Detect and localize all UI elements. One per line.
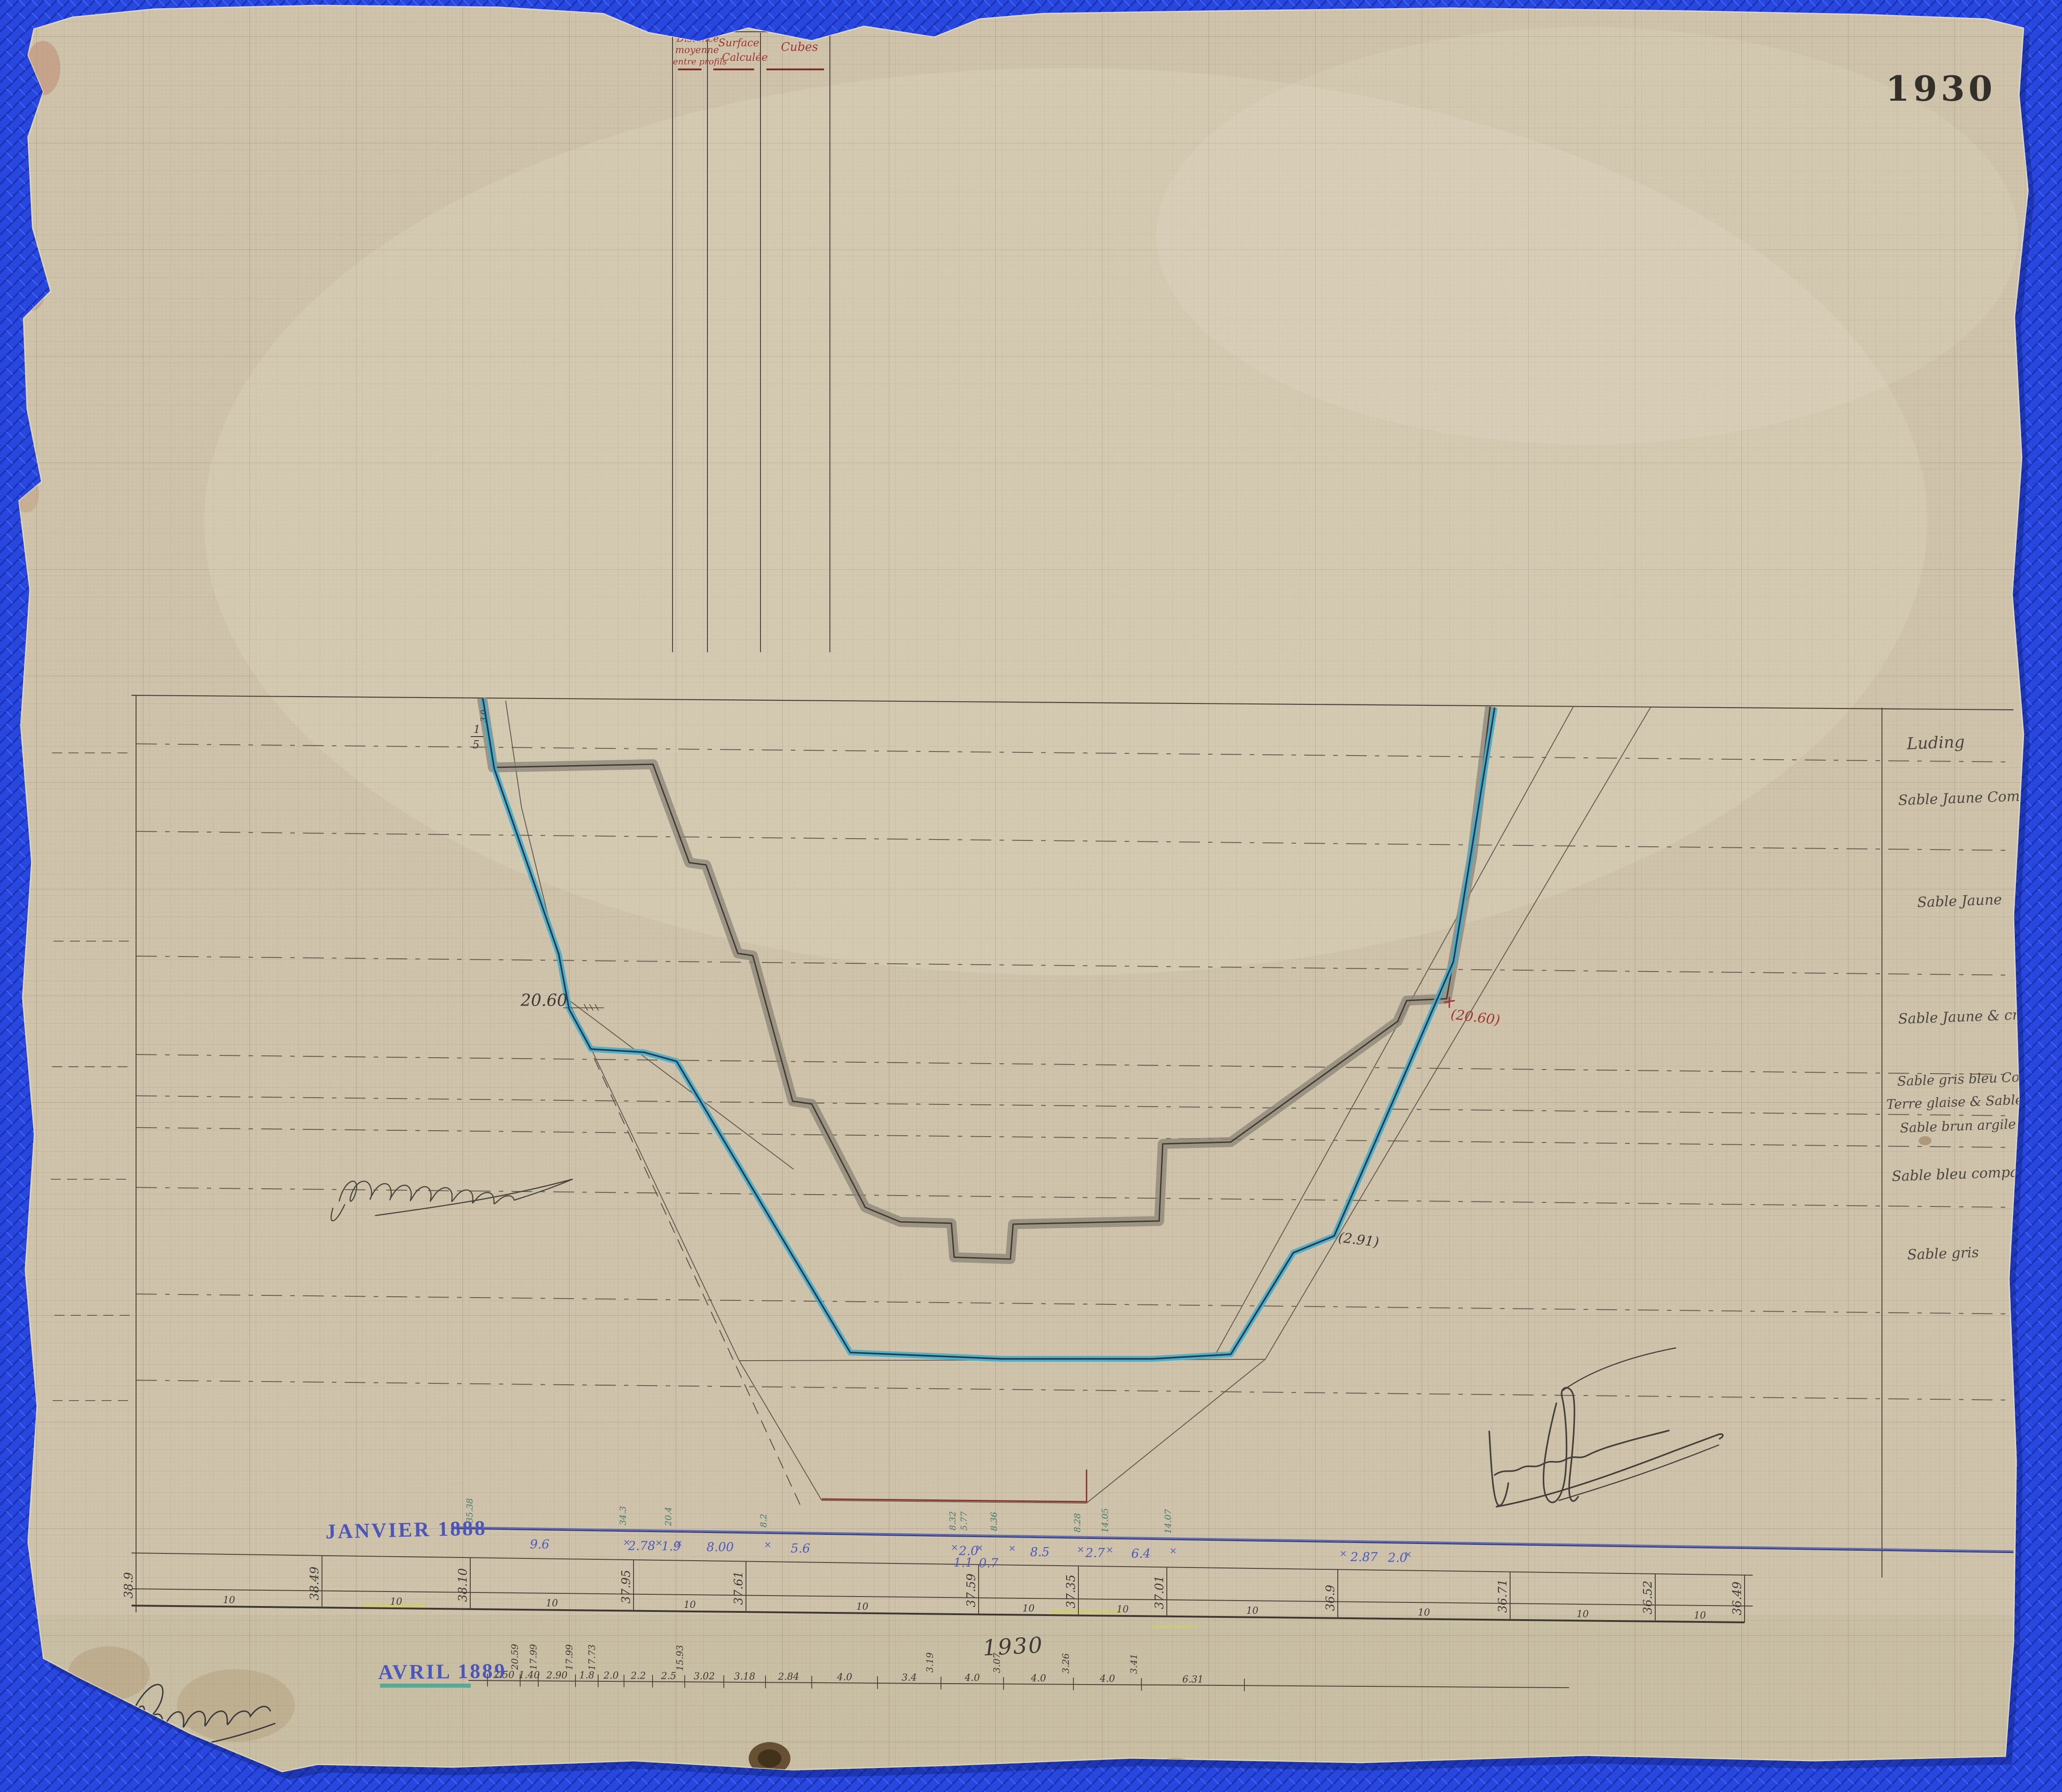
janvier-x-mark: × bbox=[1170, 1545, 1177, 1556]
janvier-x-mark: × bbox=[623, 1537, 631, 1548]
station-spacing-label: 10 bbox=[1694, 1610, 1706, 1621]
janvier-depth-value: 5.6 bbox=[791, 1542, 810, 1556]
station-elevation: 36.52 bbox=[1641, 1581, 1655, 1614]
table-col2-line2: Calculée bbox=[722, 52, 768, 63]
station-elevation: 37.95 bbox=[619, 1570, 633, 1603]
station-elevation: 37.61 bbox=[732, 1571, 746, 1605]
bench-elevation-label: 20.60 bbox=[520, 991, 567, 1010]
slope-ratio-denominator: 5 bbox=[473, 738, 479, 751]
station-spacing-label: 10 bbox=[390, 1596, 402, 1607]
table-col1-line3: entre profils bbox=[673, 57, 727, 67]
table-col1-line2: moyenne bbox=[675, 44, 719, 55]
avril-elevation-value: 3.26 bbox=[1060, 1653, 1071, 1674]
janvier-x-mark: × bbox=[951, 1542, 959, 1553]
janvier-depth-value: 8.00 bbox=[707, 1540, 734, 1554]
soil-label-0: Luding bbox=[1906, 733, 1965, 753]
avril-width-value: 2.0 bbox=[603, 1670, 619, 1681]
station-elevation: 38.10 bbox=[456, 1568, 470, 1602]
janvier-x-mark: × bbox=[655, 1537, 663, 1548]
station-elevation: 38.9 bbox=[122, 1572, 136, 1598]
station-spacing-label: 10 bbox=[1577, 1609, 1589, 1620]
avril-width-value: 2.90 bbox=[546, 1670, 568, 1680]
janvier-depth-value: 8.5 bbox=[1030, 1545, 1050, 1559]
plate-number-top-right: 1930 bbox=[1886, 68, 1996, 109]
avril-elevation-value: 15.93 bbox=[674, 1645, 685, 1671]
station-spacing-label: 10 bbox=[1023, 1603, 1035, 1614]
janvier-depth-value: 2.87 bbox=[1350, 1550, 1378, 1564]
yellow-marker-streak bbox=[1152, 1625, 1197, 1628]
avril-elevation-value: 17.99 bbox=[528, 1644, 539, 1670]
avril-width-value: 2.84 bbox=[778, 1671, 799, 1682]
avril-width-value: 6.31 bbox=[1182, 1674, 1204, 1685]
janvier-height-value: 8.28 bbox=[1072, 1513, 1082, 1532]
avril-width-value: 1.8 bbox=[579, 1670, 594, 1681]
janvier-1888-stamp: JANVIER 1888 bbox=[325, 1516, 487, 1543]
avril-width-value: 2.50 bbox=[493, 1670, 515, 1680]
avril-width-value: 4.0 bbox=[1099, 1673, 1115, 1684]
station-spacing-label: 10 bbox=[1418, 1607, 1430, 1618]
avril-width-value: 3.02 bbox=[694, 1670, 715, 1681]
stain bbox=[177, 1669, 295, 1742]
station-elevation: 37.59 bbox=[965, 1573, 978, 1607]
janvier-depth-value: 1.1 bbox=[954, 1556, 973, 1570]
avril-width-value: 4.0 bbox=[837, 1671, 852, 1682]
avril-elevation-value: 20.59 bbox=[509, 1644, 520, 1670]
janvier-depth-value: 2.78 bbox=[628, 1539, 655, 1553]
station-spacing-label: 10 bbox=[546, 1598, 558, 1609]
scanned-survey-profile-sheet: Distance moyenne entre profils Surface C… bbox=[0, 0, 2062, 1792]
station-spacing-label: 10 bbox=[1246, 1605, 1258, 1616]
slope-ratio-numerator: 1 bbox=[473, 723, 480, 736]
janvier-x-mark: × bbox=[1009, 1543, 1016, 1553]
yellow-marker-streak bbox=[1050, 1609, 1122, 1613]
crest-note: 3.0 bbox=[479, 710, 488, 722]
janvier-x-mark: × bbox=[1106, 1544, 1114, 1555]
station-spacing-label: 10 bbox=[684, 1599, 696, 1610]
station-spacing-label: 10 bbox=[223, 1594, 235, 1605]
janvier-x-mark: × bbox=[675, 1538, 683, 1548]
janvier-x-mark: × bbox=[1340, 1548, 1347, 1558]
avril-width-value: 3.18 bbox=[734, 1671, 756, 1682]
avril-width-value: 4.0 bbox=[1030, 1673, 1046, 1684]
station-spacing-label: 10 bbox=[856, 1601, 868, 1612]
station-elevation: 36.49 bbox=[1731, 1582, 1744, 1615]
avril-width-value: 1.40 bbox=[519, 1670, 540, 1680]
soil-label-2: Sable Jaune bbox=[1917, 891, 2002, 910]
avril-width-value: 2.5 bbox=[661, 1670, 676, 1681]
station-elevation: 38.49 bbox=[308, 1567, 322, 1600]
janvier-x-mark: × bbox=[1404, 1549, 1412, 1560]
table-col3-label: Cubes bbox=[781, 40, 818, 54]
station-elevation: 37.35 bbox=[1064, 1574, 1078, 1608]
avril-elevation-value: 3.41 bbox=[1128, 1654, 1139, 1674]
station-elevation: 36.71 bbox=[1496, 1579, 1510, 1612]
janvier-height-value: 35.38 bbox=[465, 1498, 475, 1523]
janvier-depth-value: 2.7 bbox=[1085, 1546, 1106, 1560]
janvier-height-value: 5.77 bbox=[959, 1511, 969, 1530]
janvier-height-value: 8.36 bbox=[989, 1512, 999, 1531]
janvier-x-mark: × bbox=[1077, 1544, 1085, 1555]
janvier-height-value: 20.4 bbox=[663, 1507, 673, 1526]
station-elevation: 36.9 bbox=[1324, 1585, 1337, 1611]
janvier-depth-value: 9.6 bbox=[530, 1538, 550, 1552]
avril-elevation-value: 3.07 bbox=[991, 1653, 1002, 1673]
table-col2-line1: Surface bbox=[718, 37, 759, 49]
janvier-depth-value: 6.4 bbox=[1131, 1547, 1151, 1561]
janvier-height-value: 14.07 bbox=[1163, 1509, 1173, 1533]
janvier-height-value: 14.05 bbox=[1100, 1508, 1110, 1533]
station-elevation: 37.01 bbox=[1153, 1576, 1166, 1609]
janvier-x-mark: × bbox=[764, 1539, 772, 1550]
station-spacing-label: 10 bbox=[1116, 1604, 1129, 1615]
avril-width-value: 4.0 bbox=[964, 1672, 980, 1683]
janvier-x-mark: × bbox=[976, 1542, 984, 1553]
avril-elevation-value: 3.19 bbox=[924, 1652, 935, 1673]
janvier-height-value: 8.2 bbox=[759, 1514, 769, 1528]
janvier-height-value: 34.3 bbox=[618, 1506, 628, 1525]
avril-width-value: 3.4 bbox=[902, 1672, 916, 1683]
janvier-depth-value: 0.7 bbox=[979, 1556, 999, 1570]
avril-stamp-underline bbox=[380, 1684, 471, 1688]
avril-elevation-value: 17.73 bbox=[586, 1645, 597, 1670]
janvier-height-value: 8.32 bbox=[948, 1511, 958, 1530]
stain bbox=[1919, 1136, 1931, 1145]
stain bbox=[758, 1749, 781, 1768]
avril-elevation-value: 17.99 bbox=[564, 1644, 575, 1670]
avril-width-value: 2.2 bbox=[630, 1670, 646, 1681]
soil-label-8: Sable gris bbox=[1907, 1244, 1979, 1263]
